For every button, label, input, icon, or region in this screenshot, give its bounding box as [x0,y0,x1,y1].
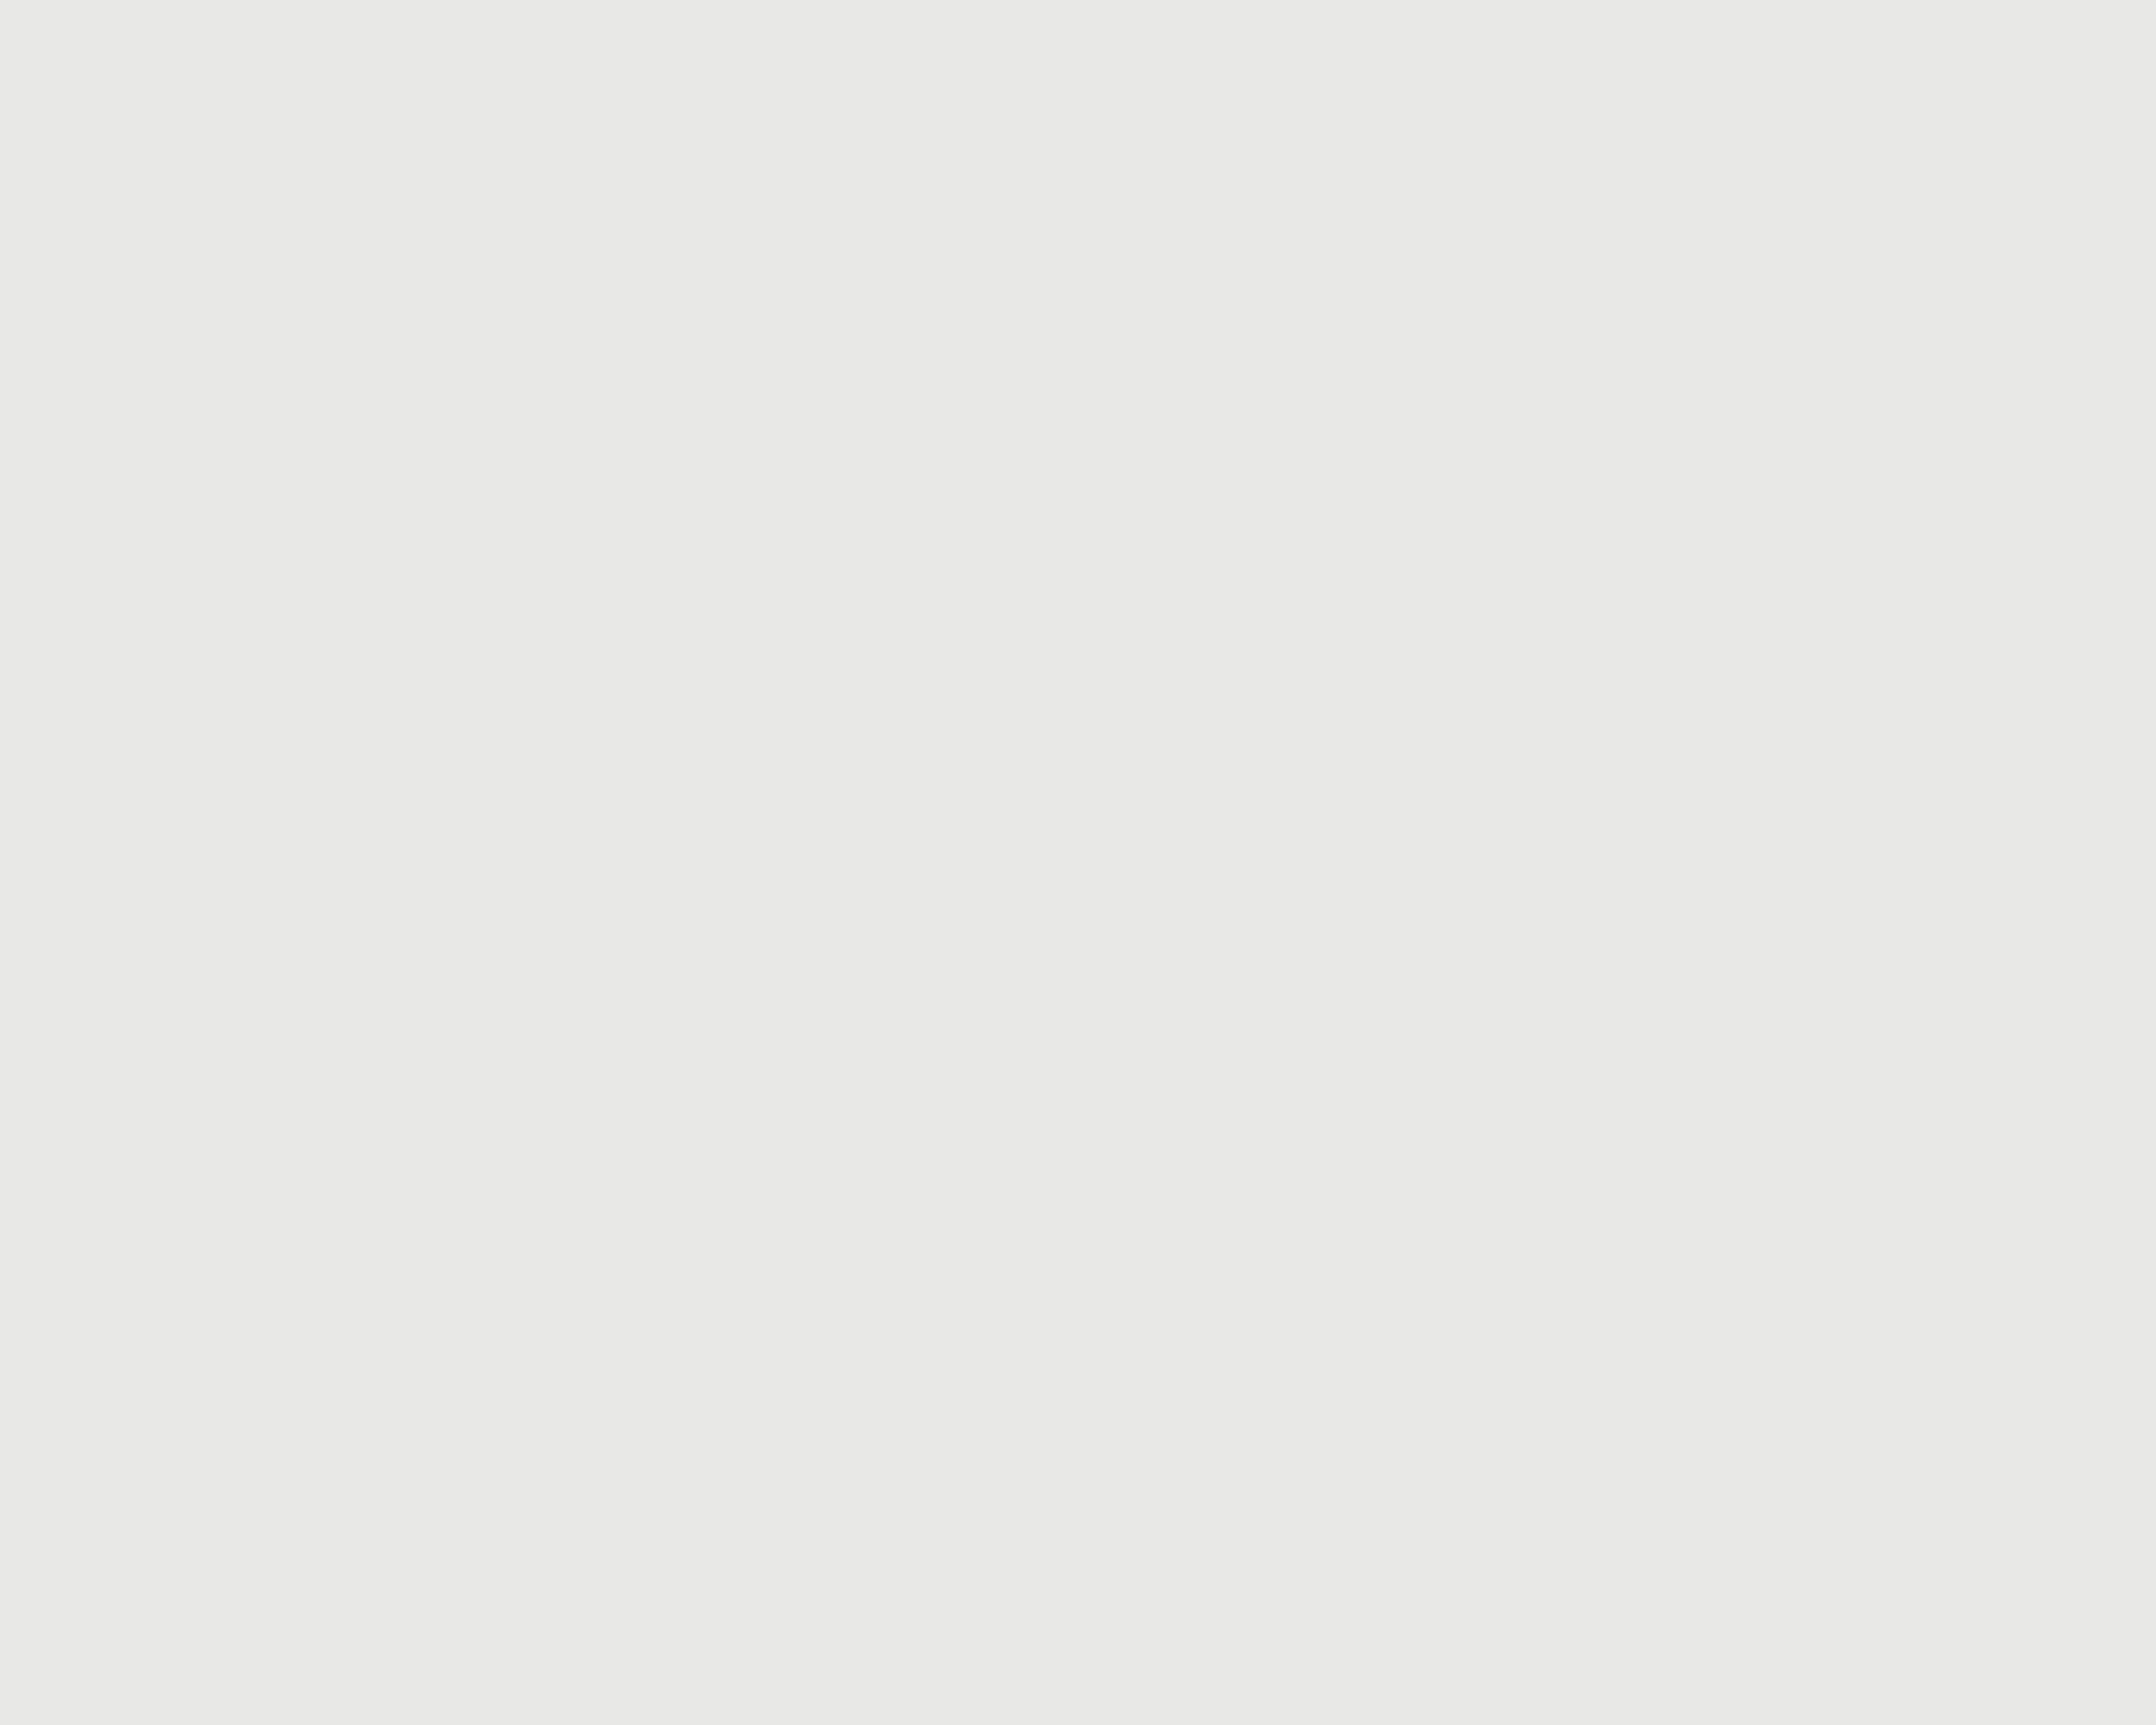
floor-plan-svg [0,0,2156,1725]
scanned-drawing-page [0,0,2156,1725]
